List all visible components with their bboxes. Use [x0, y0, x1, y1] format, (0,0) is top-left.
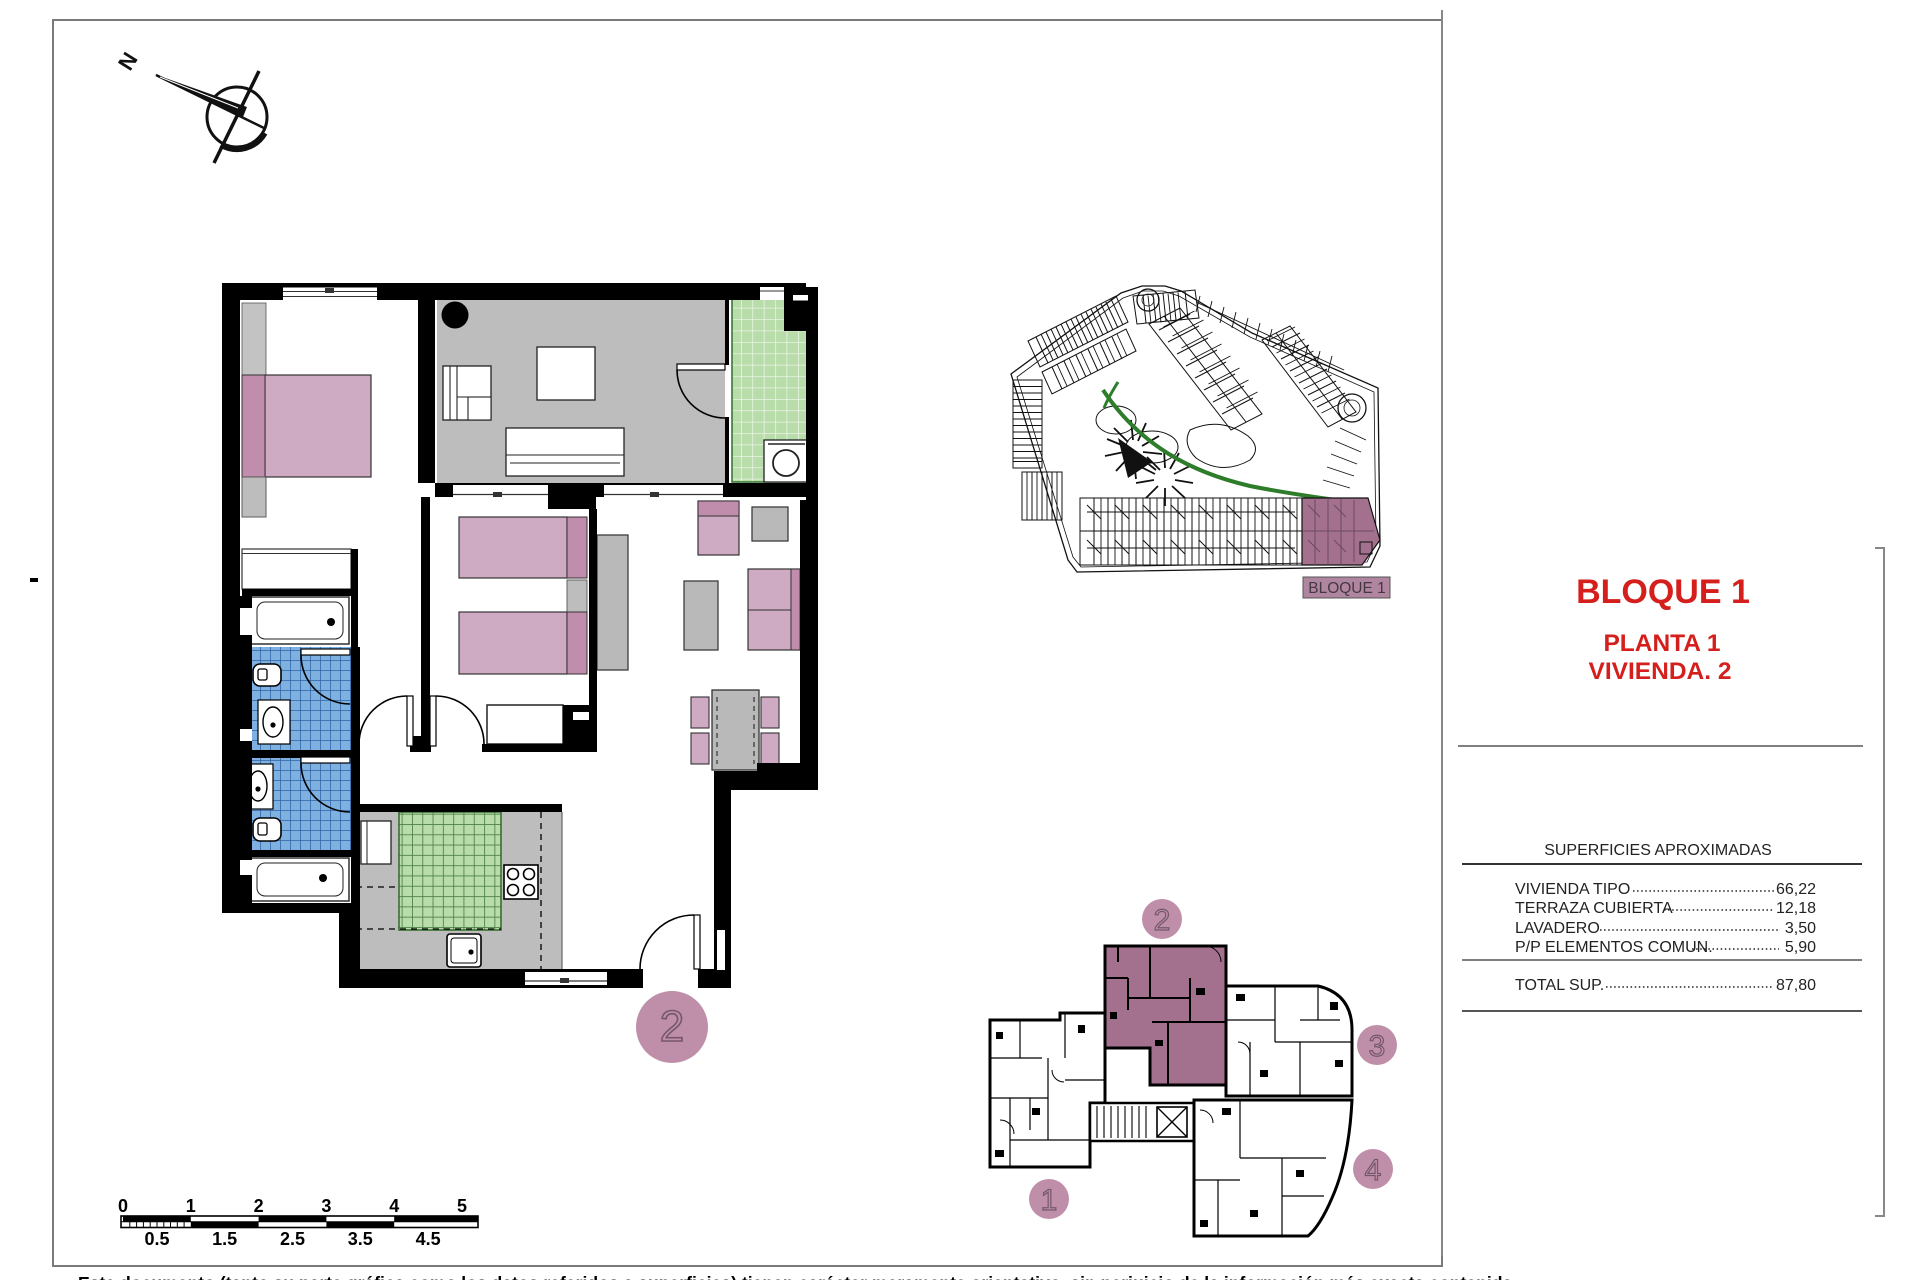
svg-text:PLANTA 1: PLANTA 1	[1603, 630, 1720, 657]
svg-text:Este documento (tanto su parte: Este documento (tanto su parte gráfica c…	[78, 1273, 1513, 1280]
svg-text:BLOQUE 1: BLOQUE 1	[1576, 573, 1750, 611]
svg-text:87,80: 87,80	[1776, 977, 1816, 994]
svg-text:1: 1	[186, 1196, 196, 1216]
svg-text:66,22: 66,22	[1776, 881, 1816, 898]
svg-text:TERRAZA CUBIERTA: TERRAZA CUBIERTA	[1515, 900, 1673, 917]
svg-text:3: 3	[321, 1196, 331, 1216]
svg-text:2: 2	[1154, 904, 1171, 937]
svg-text:VIVIENDA TIPO: VIVIENDA TIPO	[1515, 881, 1630, 898]
svg-text:4.5: 4.5	[416, 1229, 441, 1249]
svg-text:1: 1	[1041, 1184, 1058, 1217]
svg-text:2.5: 2.5	[280, 1229, 305, 1249]
svg-text:3,50: 3,50	[1785, 920, 1816, 937]
svg-text:12,18: 12,18	[1776, 900, 1816, 917]
svg-text:0: 0	[118, 1196, 128, 1216]
svg-text:TOTAL SUP.: TOTAL SUP.	[1515, 977, 1604, 994]
svg-text:5,90: 5,90	[1785, 939, 1816, 956]
svg-text:5: 5	[457, 1196, 467, 1216]
svg-text:3.5: 3.5	[348, 1229, 373, 1249]
svg-text:2: 2	[660, 1002, 684, 1051]
svg-text:4: 4	[389, 1196, 399, 1216]
svg-text:VIVIENDA. 2: VIVIENDA. 2	[1589, 658, 1732, 685]
svg-text:2: 2	[254, 1196, 264, 1216]
svg-text:0.5: 0.5	[144, 1229, 169, 1249]
svg-text:LAVADERO: LAVADERO	[1515, 920, 1600, 937]
svg-text:SUPERFICIES APROXIMADAS: SUPERFICIES APROXIMADAS	[1544, 842, 1772, 859]
svg-text:4: 4	[1365, 1154, 1382, 1187]
svg-text:1.5: 1.5	[212, 1229, 237, 1249]
svg-text:3: 3	[1369, 1030, 1386, 1063]
svg-text:BLOQUE 1: BLOQUE 1	[1308, 580, 1386, 597]
svg-text:P/P ELEMENTOS COMUN.: P/P ELEMENTOS COMUN.	[1515, 939, 1713, 956]
